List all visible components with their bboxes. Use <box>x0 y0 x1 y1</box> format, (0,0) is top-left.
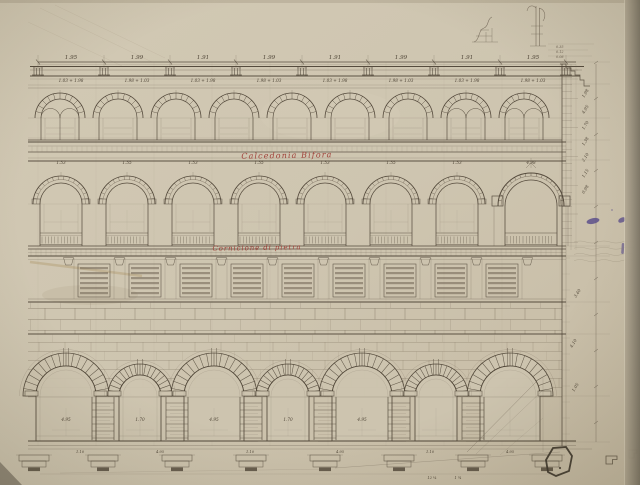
scanned-architectural-drawing: 1.95 1.99 1.91 1.99 1.91 1.99 1.91 1.95 … <box>0 0 640 485</box>
vignette-overlay <box>0 0 640 485</box>
facade-elevation-sheet: 1.95 1.99 1.91 1.99 1.91 1.99 1.91 1.95 … <box>0 0 640 485</box>
